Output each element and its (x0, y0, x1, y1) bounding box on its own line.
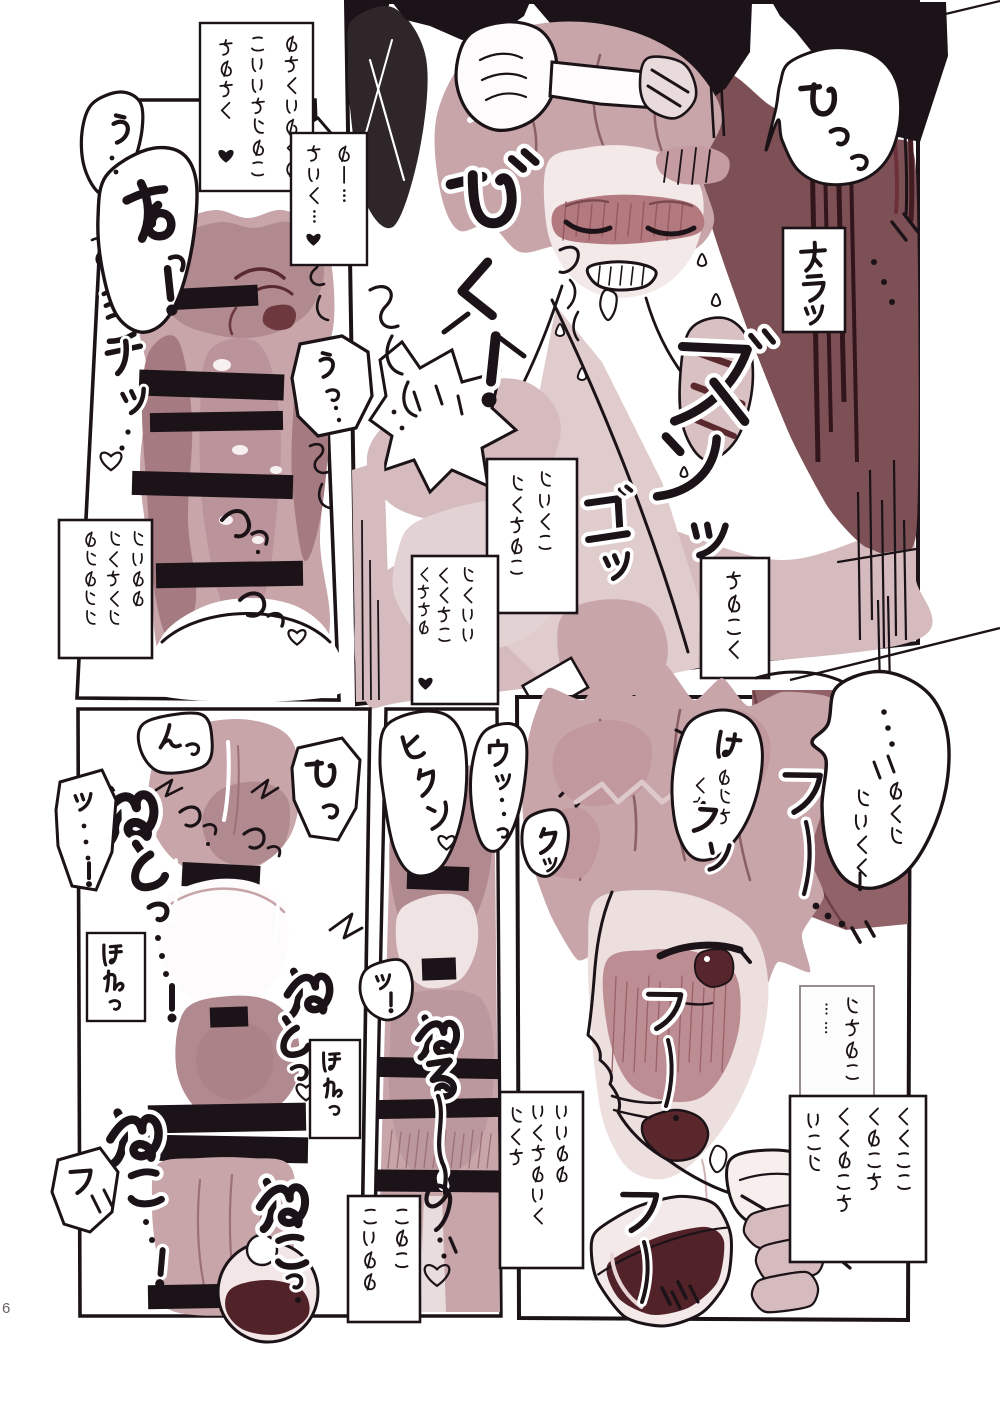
svg-text:6: 6 (2, 1300, 10, 1317)
